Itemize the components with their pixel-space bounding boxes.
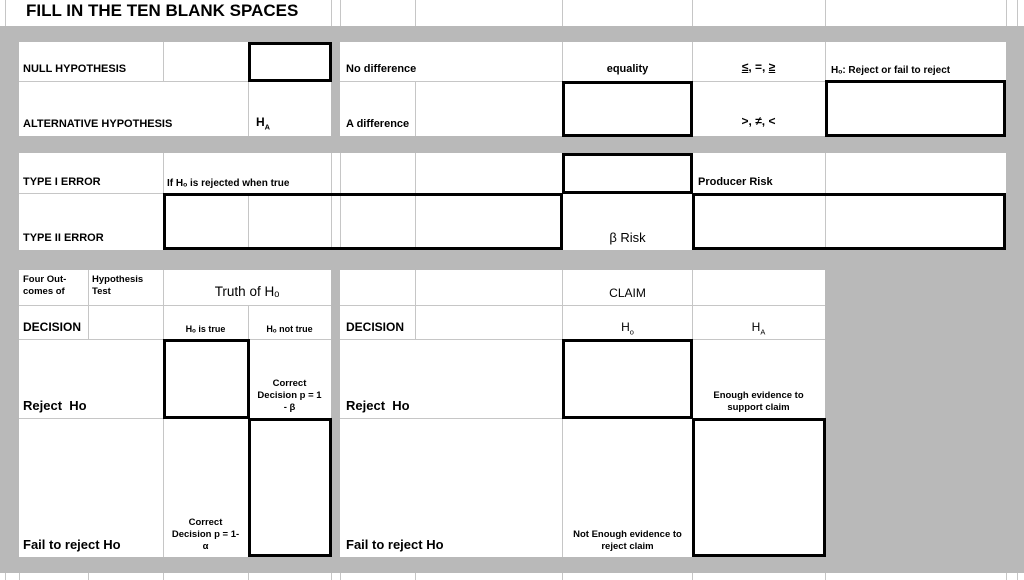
gridline [1017,573,1018,580]
alternative-symbol-cell: HA [248,81,331,136]
null-meaning-cell: equality [562,42,693,81]
spreadsheet-worksheet: FILL IN THE TEN BLANK SPACES NULL HYPOTH… [0,0,1024,580]
gridline [415,573,416,580]
ha-symbol-sub: A [760,327,765,336]
claim-ha-header: HA [692,305,825,339]
claim-reject-note-cell: Enough evidence to support claim [692,339,825,418]
null-signs-cell: ≤, =, ≥ [692,42,825,81]
gridline [5,0,6,26]
outcomes-corner-cell-1: Four Out- comes of [19,270,88,306]
null-difference-cell: No difference [340,42,500,81]
greater-equal-sign: ≥ [769,60,776,74]
claim-h0-header: Ho [562,305,693,339]
truth-of-h0-header: Truth of Hₒ [163,270,331,305]
type1-error-label: TYPE I ERROR [19,153,163,194]
h0-symbol-base: H [621,320,630,334]
gridline [692,0,693,26]
blank-box-type2-risk[interactable] [692,193,1006,250]
blank-box-alternative-meaning[interactable] [562,81,693,137]
gridline [1017,0,1018,26]
blank-box-type1-risk[interactable] [562,153,693,194]
null-hypothesis-label: NULL HYPOTHESIS [19,42,189,81]
h0-not-true-header: Hₒ not true [248,305,331,339]
gridline [825,0,826,26]
blank-box-null-symbol[interactable] [248,42,332,82]
gridline [1006,0,1007,26]
outcomes-reject-label: Reject Ho [19,339,169,418]
h0-is-true-header: Hₒ is true [163,305,248,339]
claim-decision-label: DECISION [340,305,450,339]
alternative-signs-cell: >, ≠, < [692,81,825,136]
blank-box-type2-definition[interactable] [163,193,563,250]
worksheet-title: FILL IN THE TEN BLANK SPACES [22,0,442,26]
outcomes-decision-label: DECISION [19,305,129,339]
claim-fail-label: Fail to reject Ho [340,418,510,557]
gridline [5,573,6,580]
outcomes-fail-correct-cell: Correct Decision p = 1- α [163,418,248,557]
gridline [1006,573,1007,580]
equal-sign: , =, [748,60,768,74]
h0-decision-note: Hₒ: Reject or fail to reject [825,42,1006,81]
gridline [825,573,826,580]
beta-risk-cell: β Risk [562,193,693,250]
blank-box-alternative-decision[interactable] [825,80,1006,137]
gridline [163,573,164,580]
gridline [88,573,89,580]
outcomes-reject-correct-cell: Correct Decision p = 1 - β [248,339,331,418]
gridline [562,573,563,580]
ha-symbol-base: H [256,115,265,129]
blank-box-fail-h0-not-true[interactable] [248,418,332,557]
gridline [19,573,20,580]
blank-box-reject-h0-true[interactable] [163,339,250,419]
gridline [692,573,693,580]
h0-symbol-sub: o [630,327,634,336]
outcomes-corner-cell-2: Hypothesis Test [88,270,164,306]
type1-definition-cell: If Hₒ is rejected when true [163,153,423,194]
bottom-row-sliver [0,573,1024,580]
claim-fail-note-cell: Not Enough evidence to reject claim [562,418,693,557]
blank-box-claim-reject-h0[interactable] [562,339,693,419]
gridline [331,573,332,580]
ha-symbol-sub: A [265,122,270,131]
blank-box-claim-fail-ha[interactable] [692,418,826,557]
gridline [562,0,563,26]
gridline [248,573,249,580]
claim-reject-label: Reject Ho [340,339,490,418]
alternative-hypothesis-label: ALTERNATIVE HYPOTHESIS [19,81,269,136]
producer-risk-cell: Producer Risk [692,153,832,194]
claim-header: CLAIM [562,270,693,305]
type2-error-label: TYPE II ERROR [19,193,163,250]
gridline [340,573,341,580]
alternative-difference-cell: A difference [340,81,500,136]
